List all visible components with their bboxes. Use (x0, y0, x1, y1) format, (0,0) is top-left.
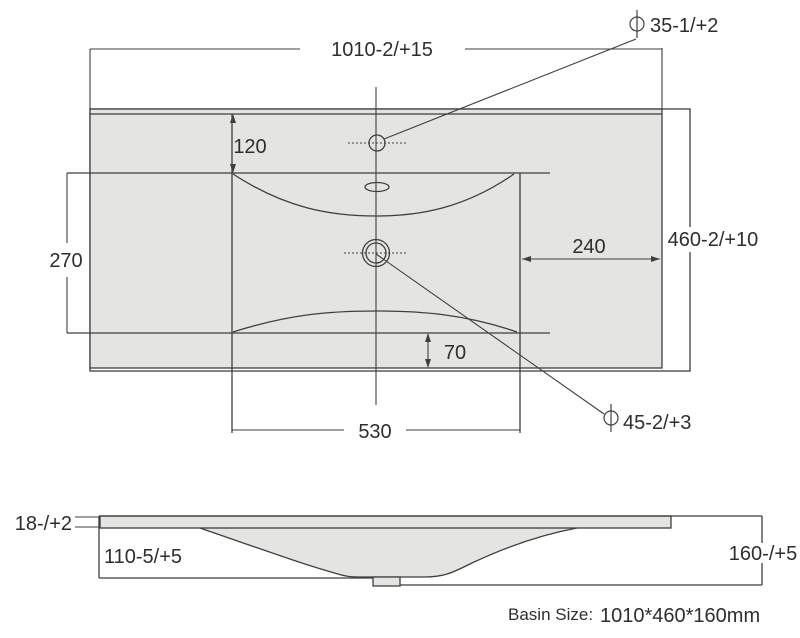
dim-bowl-width-label: 530 (358, 421, 391, 443)
diameter-symbol-drain (604, 404, 618, 432)
dim-top-thickness-label: 18-/+2 (15, 513, 72, 535)
dim-bowl-front-span-label: 270 (49, 250, 82, 272)
dim-right-inset-label: 240 (572, 236, 605, 258)
dim-overall-depth-label: 460-2/+10 (668, 229, 759, 251)
drawing-canvas: 1010-2/+15 120 270 240 460-2/+10 70 530 … (0, 0, 800, 633)
caption-value: 1010*460*160mm (600, 605, 760, 627)
top-slab (100, 516, 671, 528)
dim-overall-height-label: 160-/+5 (729, 543, 797, 565)
bowl-section-fill (200, 528, 577, 577)
dim-faucet-setback-label: 120 (233, 136, 266, 158)
faucet-hole-label: 35-1/+2 (650, 15, 718, 37)
dim-rear-inset-label: 70 (444, 342, 466, 364)
drain-stub (373, 577, 400, 586)
dim-overall-width-label: 1010-2/+15 (331, 39, 433, 61)
drain-hole-label: 45-2/+3 (623, 412, 691, 434)
dim-bowl-depth-label: 110-5/+5 (104, 546, 182, 568)
top-view (67, 10, 764, 433)
caption: Basin Size: 1010*460*160mm (508, 605, 760, 627)
diameter-symbol-faucet (630, 10, 644, 38)
basin-technical-drawing: 1010-2/+15 120 270 240 460-2/+10 70 530 … (0, 0, 800, 633)
caption-label: Basin Size: (508, 605, 593, 624)
